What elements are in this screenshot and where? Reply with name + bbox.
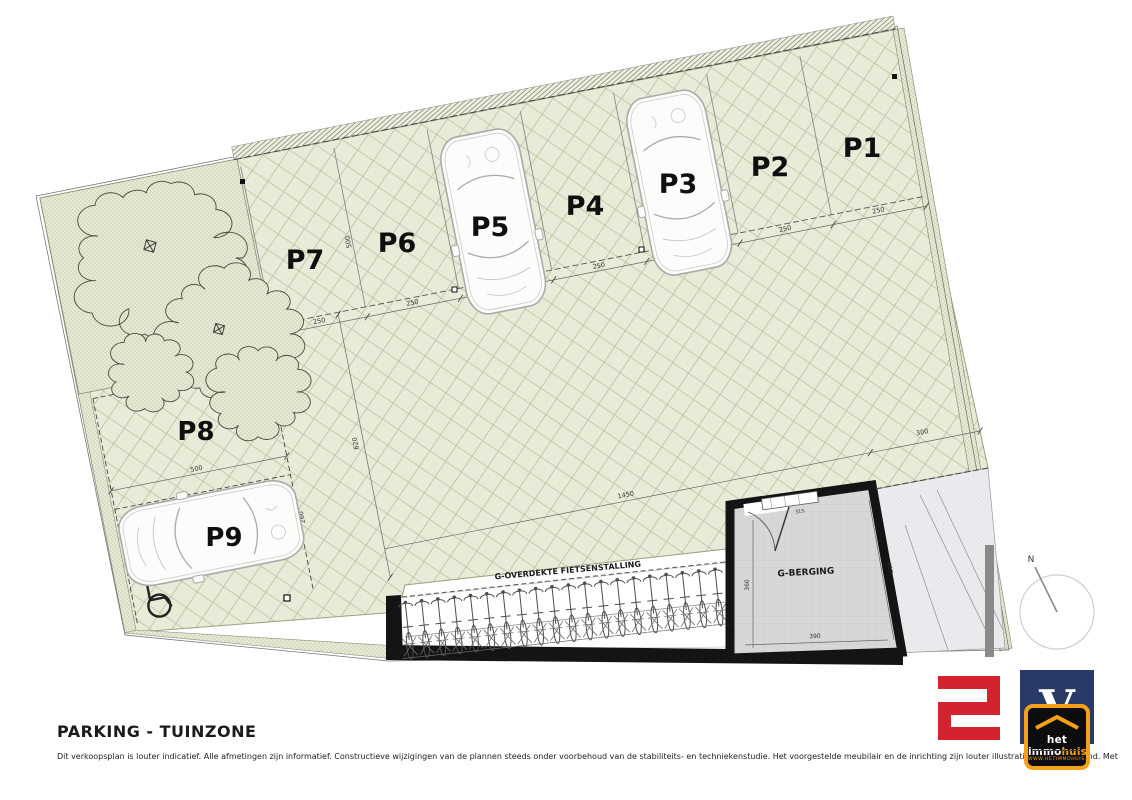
stall-label-p6: P6: [378, 228, 417, 259]
logo-area: V het immohuis www.hetimmohuis.be: [930, 668, 1100, 780]
boundary-strip-bottom: [125, 630, 398, 659]
house-roof-icon: [1034, 714, 1080, 730]
stall-label-p4: P4: [566, 191, 605, 222]
svg-text:360: 360: [744, 579, 751, 591]
stall-label-p5: P5: [471, 212, 510, 243]
north-label: N: [1028, 555, 1035, 565]
site-plan-page: 250 250 250 250 250 250 250 500 620 1450…: [0, 0, 1132, 800]
badge-divider: [1033, 750, 1081, 751]
stall-label-p8: P8: [177, 417, 214, 447]
stall-label-p9: P9: [205, 523, 242, 553]
stall-label-p7: P7: [286, 245, 325, 276]
stall-label-p1: P1: [843, 133, 882, 164]
immo-badge: het immohuis www.hetimmohuis.be: [1024, 704, 1090, 770]
stall-label-p3: P3: [659, 169, 698, 200]
immo-badge-name: het immohuis: [1028, 734, 1086, 758]
immo-badge-url: www.hetimmohuis.be: [1028, 757, 1086, 762]
page-title: PARKING - TUINZONE: [57, 722, 256, 741]
driveway-wall: [985, 545, 994, 657]
storage-room: 315 G-BERGING 360 390 417: [730, 485, 902, 658]
svg-text:390: 390: [809, 633, 821, 640]
stall-label-p2: P2: [751, 152, 790, 183]
north-arrow: N: [1020, 555, 1094, 649]
